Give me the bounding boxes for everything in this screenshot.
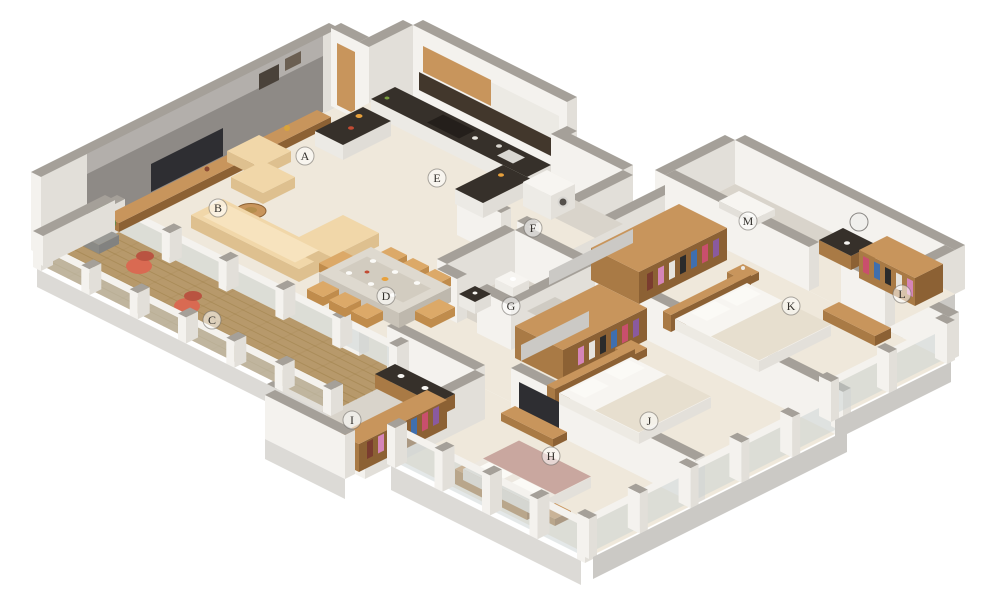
outer-walls-331: [275, 362, 283, 392]
outer-walls-322: [130, 289, 138, 319]
kitchen-167: [498, 173, 504, 177]
outer-walls-355: [538, 493, 550, 539]
outer-walls-367: [792, 413, 800, 457]
room-label-k: K: [787, 299, 796, 313]
bedroom-j-261: [622, 324, 628, 344]
outer-walls-347: [387, 424, 395, 468]
outer-walls-325: [178, 314, 186, 344]
bedroom-k-234: [713, 238, 719, 258]
dressing-m-closet-l-226: [863, 256, 869, 275]
balcony-152: [136, 251, 154, 261]
flower-vase: [284, 125, 290, 131]
wing2-back-walls-27: [955, 245, 965, 294]
room-label-g: G: [507, 299, 516, 313]
room-label-h: H: [547, 449, 556, 463]
outer-walls-380: [577, 513, 589, 559]
partition-walls-125: [332, 315, 340, 349]
outer-walls-388: [889, 349, 897, 393]
bedroom-k-237: [680, 255, 686, 275]
outer-walls-337: [33, 231, 43, 266]
washing-machine-door: [559, 198, 568, 207]
room-label-l: L: [898, 287, 905, 301]
outer-walls-377: [628, 488, 640, 534]
partition-walls-118: [227, 256, 239, 292]
room-label-m: M: [743, 214, 754, 228]
partition-walls-124: [340, 313, 352, 349]
isometric-floorplan-svg: ABCDEFGHIJKLM: [0, 0, 1000, 600]
outer-walls-353: [482, 472, 490, 516]
partition-walls-122: [275, 286, 283, 320]
outer-walls-373: [691, 464, 699, 508]
bath-i-291: [378, 434, 384, 454]
partition-walls-119: [219, 258, 227, 292]
room-label-e: E: [433, 171, 440, 185]
bedroom-k-240: [647, 271, 653, 291]
kitchen-163: [356, 114, 363, 118]
bedroom-k-244: [741, 266, 745, 270]
dining-185: [370, 259, 376, 263]
kitchen-166: [496, 144, 502, 148]
bedroom-j-264: [589, 340, 595, 360]
room-label-i: I: [350, 413, 354, 427]
bedroom-k-236: [691, 249, 697, 269]
dining-189: [414, 281, 420, 285]
dining-186: [346, 271, 352, 275]
outer-walls-385: [947, 320, 955, 364]
outer-walls-371: [729, 437, 741, 483]
outer-walls-350: [435, 448, 443, 492]
bedroom-j-262: [611, 329, 617, 349]
outer-walls-391: [831, 378, 839, 422]
bath-i-281: [398, 374, 405, 378]
outer-walls-319: [81, 265, 89, 295]
floorplan-render-canvas: ABCDEFGHIJKLM: [0, 0, 1000, 600]
bedroom-k-238: [669, 260, 675, 280]
outer-walls-349: [443, 446, 455, 492]
kitchen-164: [348, 126, 354, 130]
vanity-round-mirror: [850, 213, 868, 231]
bedroom-j-265: [578, 346, 584, 366]
partition-walls-115: [170, 227, 182, 263]
dining-191: [382, 277, 389, 281]
bath-i-282: [422, 386, 429, 390]
room-label-d: D: [382, 289, 391, 303]
room-label-a: A: [301, 149, 310, 163]
outer-walls-376: [640, 490, 648, 534]
room-label-b: B: [214, 201, 222, 215]
bedroom-j-263: [600, 335, 606, 355]
dressing-m-closet-l-228: [885, 267, 891, 286]
dining-188: [368, 282, 374, 286]
outer-walls-392: [819, 376, 831, 422]
room-label-f: F: [530, 221, 537, 235]
bath-i-286: [433, 406, 439, 426]
room-label-c: C: [208, 313, 216, 327]
partition-walls-121: [283, 284, 295, 320]
outer-walls-370: [741, 439, 749, 483]
balcony-153: [184, 291, 202, 301]
outer-walls-328: [226, 338, 234, 368]
dressing-m-closet-l-227: [874, 262, 880, 281]
kitchen-165: [472, 136, 478, 140]
partition-walls-116: [162, 229, 170, 263]
outer-walls-389: [877, 347, 889, 393]
dining-187: [392, 270, 398, 274]
bath-g-215: [473, 292, 478, 295]
outer-walls-352: [490, 470, 502, 516]
outer-walls-368: [780, 411, 792, 457]
outer-walls-379: [589, 515, 597, 559]
outer-walls-356: [530, 495, 538, 539]
kitchen-168: [385, 97, 390, 100]
bedroom-k-235: [702, 244, 708, 264]
bedroom-j-260: [633, 318, 639, 338]
dressing-m-closet-l-222: [844, 241, 850, 245]
outer-walls-334: [323, 386, 331, 416]
outer-walls-346: [395, 422, 407, 468]
outer-walls-386: [935, 318, 947, 364]
dining-192: [365, 271, 370, 274]
room-label-j: J: [647, 414, 652, 428]
bath-i-287: [422, 412, 428, 432]
outer-walls-374: [679, 462, 691, 508]
bedroom-k-239: [658, 266, 664, 286]
living-room-132: [205, 167, 210, 172]
outer-walls-340: [345, 430, 355, 479]
partition-walls-89: [809, 242, 819, 291]
bath-g-211: [510, 277, 516, 281]
entrance-door: [337, 43, 355, 114]
bath-i-292: [367, 439, 373, 459]
